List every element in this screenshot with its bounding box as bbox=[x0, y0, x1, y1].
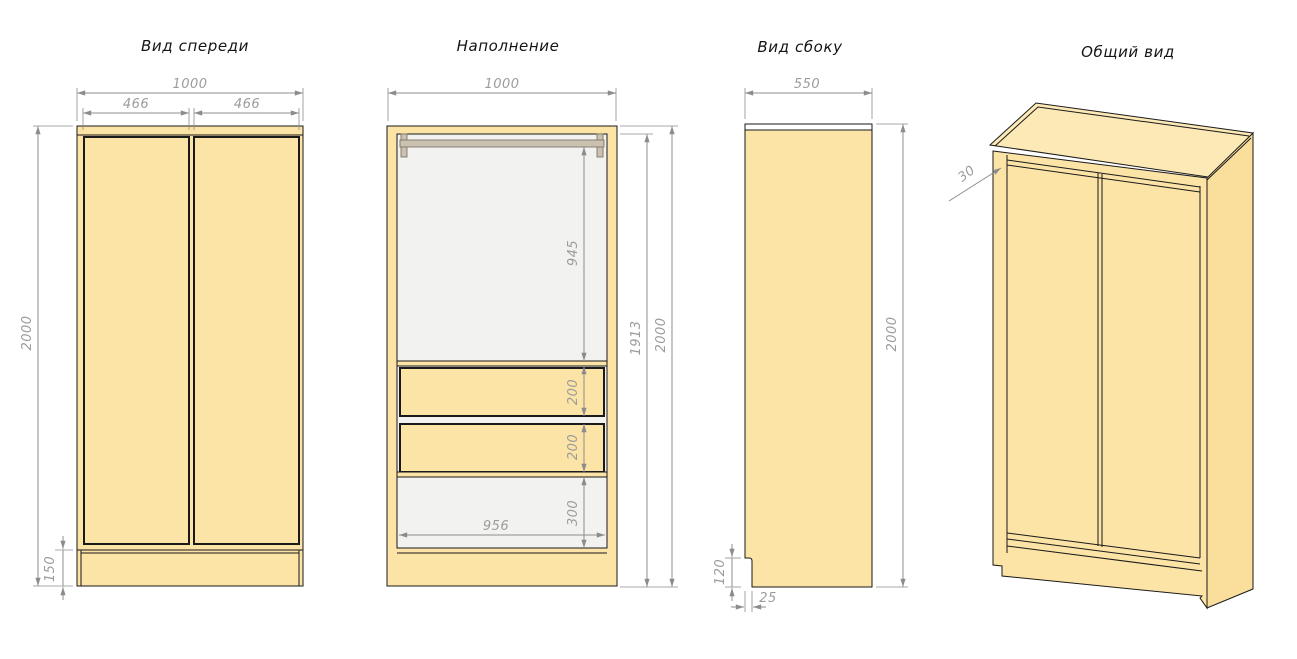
interior-dim-drawer2: 200 bbox=[566, 434, 581, 460]
front-dim-total-width: 1000 bbox=[172, 77, 207, 92]
interior-dim-inner-width: 956 bbox=[483, 519, 509, 534]
interior-cavity bbox=[397, 134, 607, 548]
front-view-title: Вид спереди bbox=[141, 37, 249, 55]
front-view: Вид спереди 1000 466 466 2000 bbox=[20, 37, 303, 600]
interior-view: Наполнение 1000 945 200 200 300 956 bbox=[387, 37, 678, 587]
side-dim-notch-depth: 25 bbox=[759, 591, 777, 606]
iso-front-face bbox=[993, 151, 1207, 608]
iso-dim-overhang: 30 bbox=[955, 163, 978, 186]
interior-dim-carcass-inner-height: 1913 bbox=[629, 320, 644, 355]
shelf-below-drawers bbox=[397, 472, 607, 477]
front-dim-left-door: 466 bbox=[123, 97, 149, 112]
interior-dim-drawer1: 200 bbox=[566, 379, 581, 405]
front-right-door bbox=[194, 137, 299, 544]
side-view: Вид сбоку 550 2000 120 25 bbox=[713, 38, 908, 612]
interior-dim-bottom-section: 300 bbox=[566, 500, 581, 526]
interior-dim-hanging: 945 bbox=[566, 240, 581, 266]
side-panel-body bbox=[745, 130, 872, 587]
front-dim-plinth: 150 bbox=[43, 556, 58, 582]
shelf-above-drawers bbox=[397, 361, 607, 366]
overall-view: Общий вид 30 bbox=[949, 43, 1253, 608]
front-dim-right-door: 466 bbox=[234, 97, 260, 112]
interior-view-title: Наполнение bbox=[457, 37, 560, 55]
side-view-title: Вид сбоку bbox=[757, 38, 843, 56]
side-dim-notch-height: 120 bbox=[713, 559, 728, 585]
front-dim-total-height: 2000 bbox=[20, 315, 35, 350]
hanging-rod bbox=[400, 140, 604, 147]
side-dim-height: 2000 bbox=[885, 316, 900, 351]
side-dim-depth: 550 bbox=[794, 77, 820, 92]
front-left-door bbox=[84, 137, 189, 544]
iso-right-side-face bbox=[1207, 133, 1253, 608]
blueprint-canvas: Вид спереди 1000 466 466 2000 bbox=[0, 0, 1297, 659]
interior-dim-total-height: 2000 bbox=[654, 317, 669, 352]
side-top-panel bbox=[745, 124, 872, 130]
overall-view-title: Общий вид bbox=[1081, 43, 1175, 61]
interior-dim-total-width: 1000 bbox=[484, 77, 519, 92]
